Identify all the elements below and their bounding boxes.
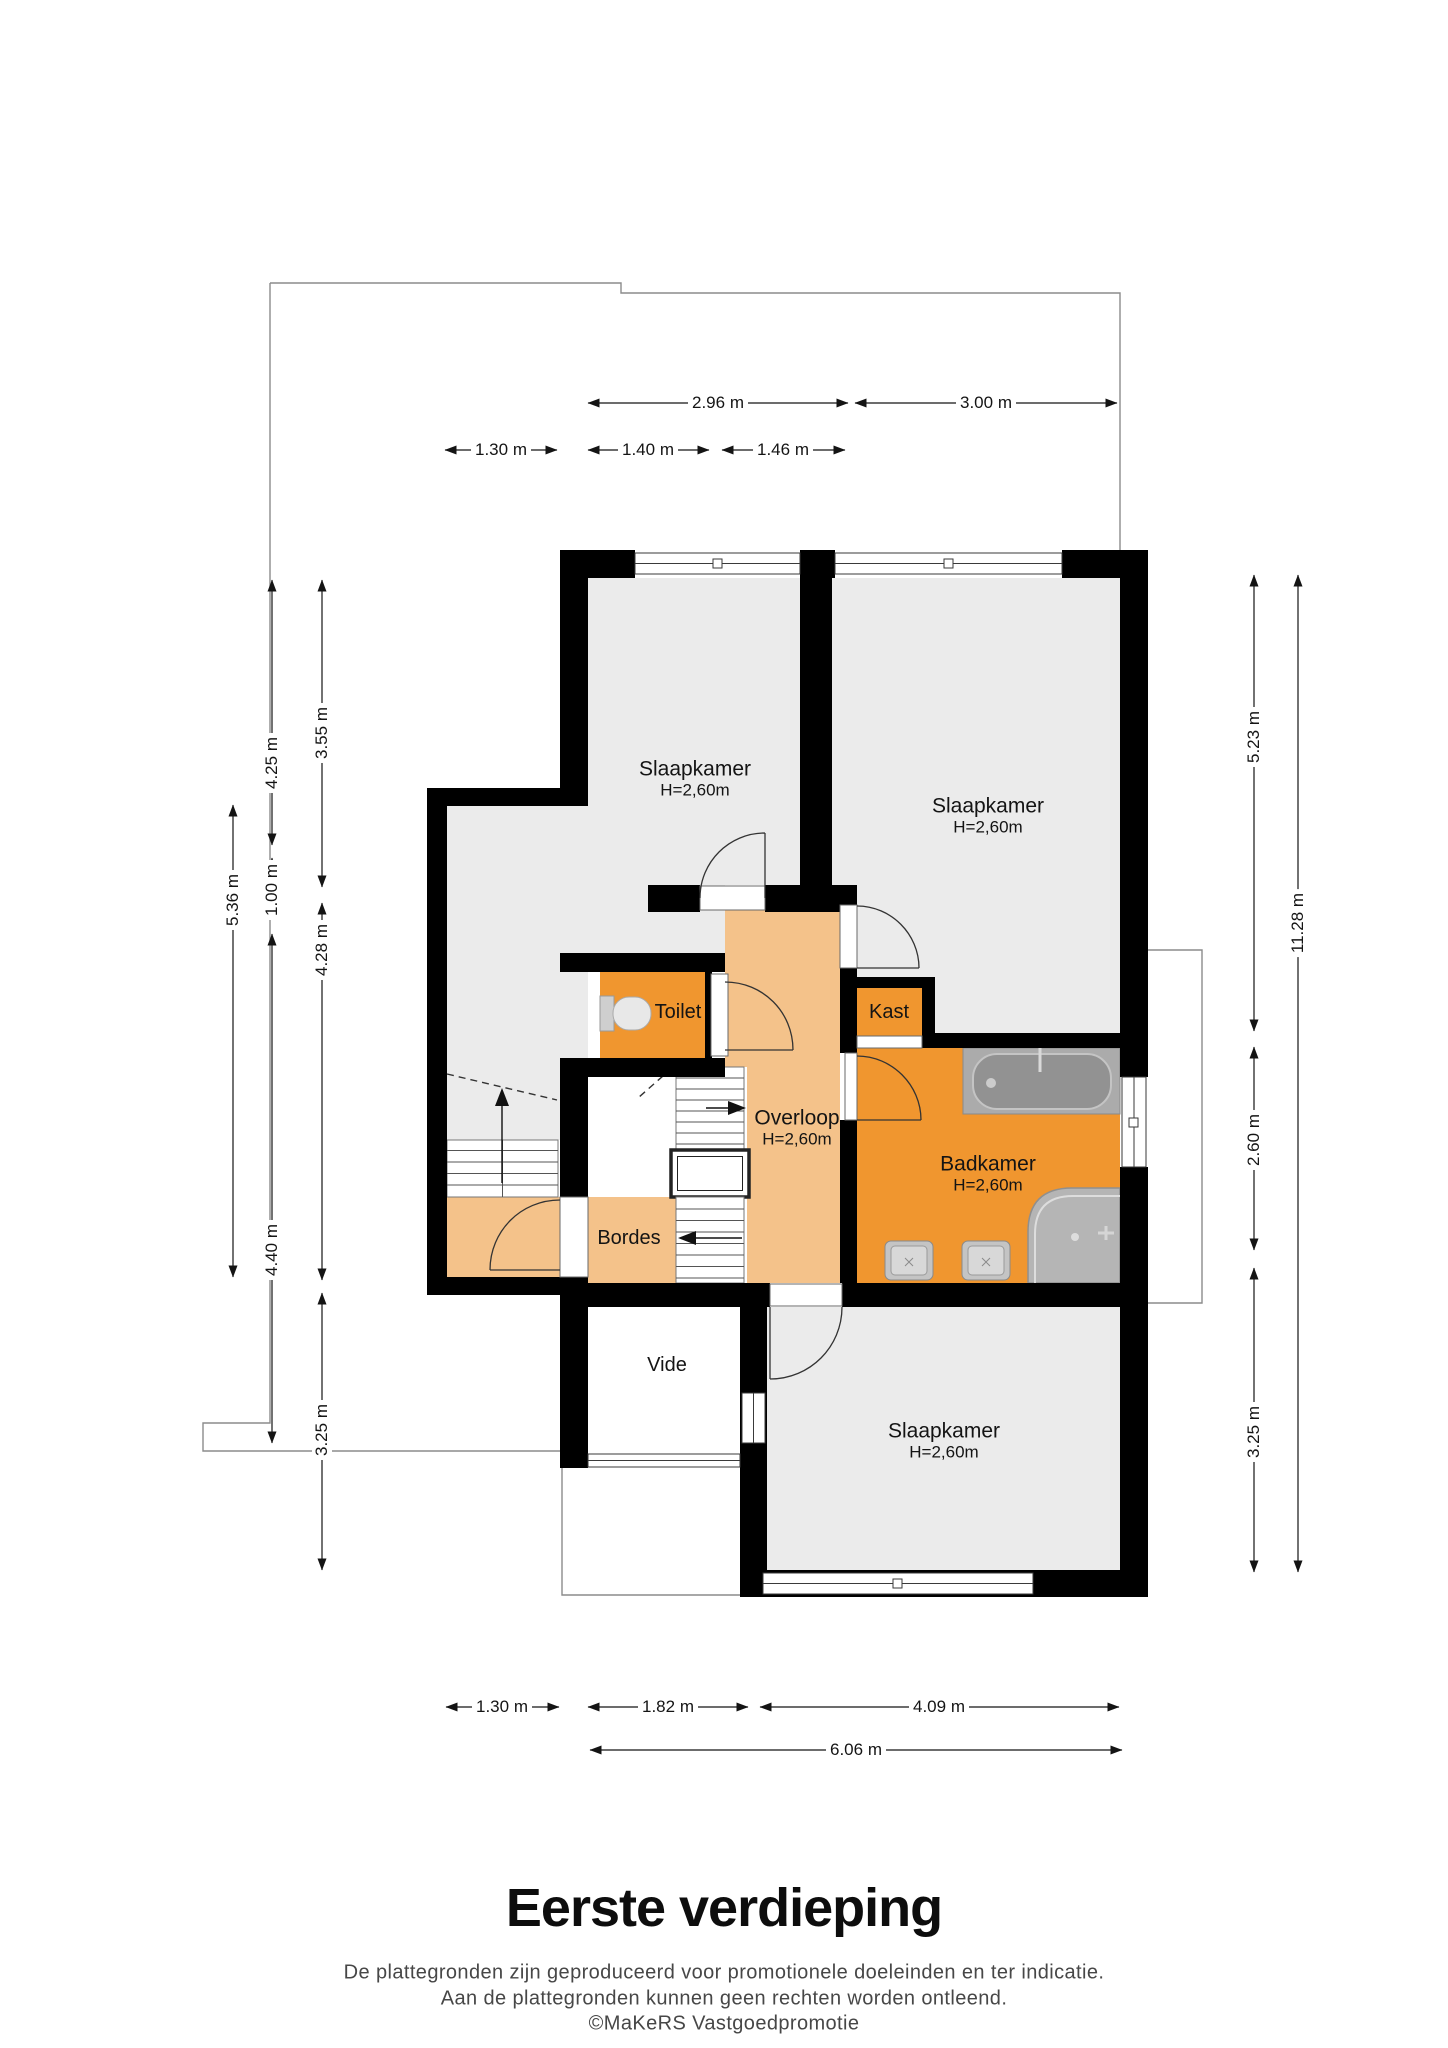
stair-landing <box>671 1150 749 1197</box>
shower <box>1028 1188 1120 1283</box>
footer-disclaimer-1: De plattegronden zijn geproduceerd voor … <box>344 1962 1105 1985</box>
dimension-label: 4.09 m <box>909 1697 969 1717</box>
door-frame-badkamer <box>845 1053 857 1120</box>
footer-copyright: ©MaKeRS Vastgoedpromotie <box>589 2013 860 2036</box>
dimension-label: 2.60 m <box>1244 1110 1264 1170</box>
floor-plan-page: Slaapkamer H=2,60m Slaapkamer H=2,60m Sl… <box>0 0 1448 2048</box>
room-label-overloop: Overloop H=2,60m <box>754 1107 839 1148</box>
dimension-label: 4.25 m <box>262 733 282 793</box>
bathtub <box>963 1048 1120 1114</box>
door-frame-slaapkamer-3 <box>770 1284 842 1306</box>
dimension-label: 1.40 m <box>618 440 678 460</box>
footer-disclaimer-2: Aan de plattegronden kunnen geen rechten… <box>441 1988 1008 2011</box>
dimension-label: 1.30 m <box>472 1697 532 1717</box>
window-bottom <box>763 1573 1033 1594</box>
room-label-slaapkamer-2: Slaapkamer H=2,60m <box>932 795 1044 836</box>
dimension-label: 4.28 m <box>312 920 332 980</box>
dimension-label: 1.46 m <box>753 440 813 460</box>
page-title: Eerste verdieping <box>506 1877 942 1939</box>
floor-plan-drawing <box>0 0 1448 2048</box>
room-label-badkamer: Badkamer H=2,60m <box>940 1153 1036 1194</box>
room-label-bordes: Bordes <box>597 1228 660 1250</box>
dimension-label: 1.82 m <box>638 1697 698 1717</box>
right-dormer-outline <box>1148 950 1202 1303</box>
window-badkamer <box>1122 1077 1146 1167</box>
dimension-label: 5.23 m <box>1244 707 1264 767</box>
dimension-label: 3.25 m <box>312 1400 332 1460</box>
window-top-left <box>635 553 800 574</box>
dimension-label: 2.96 m <box>688 393 748 413</box>
window-vide <box>588 1454 740 1467</box>
room-label-slaapkamer-1: Slaapkamer H=2,60m <box>639 758 751 799</box>
window-top-right <box>835 553 1062 574</box>
dimension-label: 3.25 m <box>1244 1402 1264 1462</box>
door-frame-bordes <box>560 1197 588 1277</box>
sink <box>962 1241 1010 1280</box>
dimension-label: 3.00 m <box>956 393 1016 413</box>
door-frame-slaapkamer-2 <box>840 905 857 968</box>
dimension-label: 4.40 m <box>262 1220 282 1280</box>
door-frame-slaapkamer-1 <box>700 886 765 910</box>
dimension-label: 6.06 m <box>826 1740 886 1760</box>
sink <box>885 1241 933 1280</box>
dimension-label: 1.00 m <box>262 860 282 920</box>
dimension-label: 3.55 m <box>312 703 332 763</box>
room-label-vide: Vide <box>647 1355 687 1377</box>
door-frame-toilet <box>711 974 728 1056</box>
dimension-label: 5.36 m <box>223 870 243 930</box>
floor-overloop-lower <box>747 1067 840 1283</box>
room-label-kast: Kast <box>869 1002 909 1024</box>
dimension-label: 1.30 m <box>471 440 531 460</box>
window-slaapkamer3-side <box>742 1393 765 1443</box>
room-label-slaapkamer-3: Slaapkamer H=2,60m <box>888 1420 1000 1461</box>
bottom-bay-outline <box>562 1468 741 1595</box>
dimension-label: 11.28 m <box>1288 889 1308 957</box>
door-frame-kast <box>857 1036 922 1048</box>
floor-overloop-upper <box>725 893 840 1067</box>
toilet-fixture <box>600 996 651 1031</box>
room-label-toilet: Toilet <box>655 1002 702 1024</box>
